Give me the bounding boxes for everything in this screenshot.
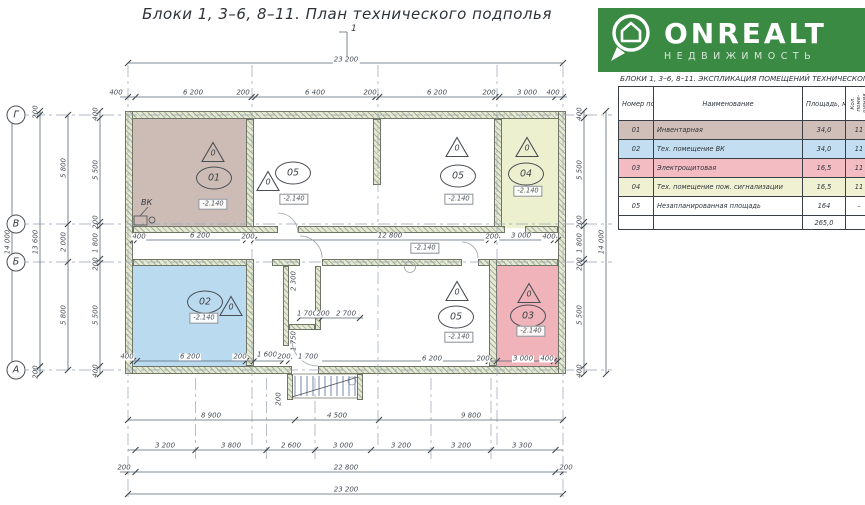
table-row: 02 Тех. помещение ВК 34,0 11: [619, 140, 865, 159]
explication-title: БЛОКИ 1, 3–6, 8–11. ЭКСПЛИКАЦИЯ ПОМЕЩЕНИ…: [620, 74, 864, 83]
dim-label: 200: [577, 215, 584, 228]
elevation-mark: -2.140: [444, 194, 473, 205]
dim-label: 1 800: [93, 233, 100, 253]
dim-label: 3 300: [511, 443, 533, 450]
dim-label: 400: [93, 364, 100, 377]
room-number-05: 05: [275, 162, 311, 185]
dim-label: 3 000: [332, 443, 354, 450]
triangle-marker: 0: [515, 137, 539, 158]
dim-label: 2 700: [335, 311, 357, 318]
triangle-marker: 0: [219, 296, 243, 317]
dim-label: 3 000: [512, 356, 534, 363]
cell-count: 11: [846, 159, 865, 178]
dim-label: 200: [362, 90, 377, 97]
dim-label: 6 200: [189, 233, 211, 240]
dim-label: 3 200: [390, 443, 412, 450]
vk-label: ВК: [141, 198, 152, 207]
triangle-marker: 0: [201, 142, 225, 163]
section-marker-label: 1: [351, 24, 357, 34]
dim-label: 6 200: [421, 356, 443, 363]
dim-label: 1 700: [297, 354, 319, 361]
table-row: 01 Инвентарная 34,0 11: [619, 121, 865, 140]
cell-name: Тех. помещение пож. сигнализации: [654, 178, 803, 197]
dim-label: 6 200: [179, 354, 201, 361]
dim-label: 400: [108, 90, 123, 97]
dim-label: 200: [558, 465, 573, 472]
table-row: 04 Тех. помещение пож. сигнализации 16,5…: [619, 178, 865, 197]
dim-label: 5 800: [61, 305, 68, 325]
dim-top-total: 23 200: [333, 57, 360, 64]
cell-count: 11: [846, 140, 865, 159]
cell-area: 164: [803, 197, 846, 216]
dim-label: 13 600: [33, 230, 40, 255]
table-header-row: Номер поме- щения Наименование Площадь, …: [619, 87, 865, 121]
room-number-03: 03: [510, 305, 546, 328]
dim-label: 5 800: [61, 158, 68, 178]
dim-label: 200: [276, 392, 283, 405]
dim-label: 2 300: [291, 271, 298, 291]
dim-label: 400: [93, 107, 100, 120]
dim-label: 2 000: [61, 232, 68, 252]
room-number-05: 05: [440, 165, 476, 188]
dim-label: 200: [33, 105, 40, 118]
dim-label: 8 900: [200, 413, 222, 420]
cell-num: 03: [619, 159, 654, 178]
dim-label: 3 000: [516, 90, 538, 97]
axis-bubble-g: Г: [7, 106, 26, 125]
cell-area: 34,0: [803, 121, 846, 140]
axis-bubble-b: Б: [7, 253, 26, 272]
cell-area: 16,5: [803, 159, 846, 178]
table-row: 05 Незапланированная площадь 164 –: [619, 197, 865, 216]
cell-num: 04: [619, 178, 654, 197]
dim-label: 200: [93, 257, 100, 270]
cell-count: 11: [846, 121, 865, 140]
explication-table: Номер поме- щения Наименование Площадь, …: [618, 86, 865, 230]
dim-label: 4 500: [326, 413, 348, 420]
dim-label: 400: [577, 107, 584, 120]
dim-label: 400: [545, 90, 560, 97]
dim-label: 400: [131, 234, 146, 241]
room-number-01: 01: [196, 167, 232, 190]
cell-count: 11: [846, 178, 865, 197]
dim-label: 5 500: [93, 160, 100, 180]
floor-plan-page: Блоки 1, 3–6, 8–11. План технического по…: [0, 0, 865, 505]
dim-label: 2 600: [280, 443, 302, 450]
dim-label: 5 500: [93, 305, 100, 325]
dim-label: 3 800: [220, 443, 242, 450]
dim-label: 400: [539, 356, 554, 363]
dim-label: 3 000: [510, 233, 532, 240]
dim-label: 3 200: [154, 443, 176, 450]
dim-label: 200: [240, 234, 255, 241]
elevation-mark: -2.140: [410, 243, 439, 254]
dim-label: 200: [93, 215, 100, 228]
dim-right-total: 14 000: [599, 230, 606, 255]
dim-label: 200: [33, 365, 40, 378]
vk-fixture: [134, 207, 155, 225]
triangle-marker: 0: [256, 171, 280, 192]
cell-count: –: [846, 197, 865, 216]
cell-name: Незапланированная площадь: [654, 197, 803, 216]
cell-num: 01: [619, 121, 654, 140]
onrealt-logo: ONREALT НЕДВИЖИМОСТЬ: [598, 8, 865, 72]
room-number-05: 05: [438, 306, 474, 329]
cell-area: 16,5: [803, 178, 846, 197]
dim-label: 400: [119, 354, 134, 361]
house-pin-icon: [606, 11, 654, 69]
cell-num: 02: [619, 140, 654, 159]
cell-num: 05: [619, 197, 654, 216]
cell-area: 34,0: [803, 140, 846, 159]
dim-bottom-total: 23 200: [333, 487, 360, 494]
dim-label: 400: [541, 234, 556, 241]
col-header-count: Кол. поме- щения: [846, 87, 865, 121]
room-number-04: 04: [508, 163, 544, 186]
cell-name: Инвентарная: [654, 121, 803, 140]
elevation-mark: -2.140: [198, 199, 227, 210]
table-total-row: 265,0: [619, 216, 865, 230]
dim-label: 200: [481, 90, 496, 97]
dim-label: 1 800: [577, 233, 584, 253]
dim-label: 9 800: [460, 413, 482, 420]
dim-label: 1 750: [291, 331, 298, 351]
triangle-marker: 0: [517, 283, 541, 304]
dim-label: 200: [484, 234, 499, 241]
room-explication: БЛОКИ 1, 3–6, 8–11. ЭКСПЛИКАЦИЯ ПОМЕЩЕНИ…: [618, 74, 864, 230]
elevation-mark: -2.140: [279, 194, 308, 205]
axis-bubble-a: А: [7, 361, 26, 380]
triangle-marker: 0: [445, 137, 469, 158]
dim-label: 200: [276, 354, 291, 361]
elevation-mark: -2.140: [516, 326, 545, 337]
logo-subtitle-text: НЕДВИЖИМОСТЬ: [664, 51, 827, 62]
dim-label: 5 500: [577, 305, 584, 325]
dim-label: 5 500: [577, 160, 584, 180]
triangle-marker: 0: [445, 281, 469, 302]
dim-label: 6 200: [426, 90, 448, 97]
page-title: Блоки 1, 3–6, 8–11. План технического по…: [142, 5, 552, 23]
dim-label: 200: [235, 90, 250, 97]
dim-label: 200: [475, 356, 490, 363]
col-header-area: Площадь, м²: [803, 87, 846, 121]
dim-label: 6 400: [304, 90, 326, 97]
table-row: 03 Электрощитовая 16,5 11: [619, 159, 865, 178]
dim-label: 200: [232, 354, 247, 361]
logo-brand-text: ONREALT: [664, 19, 827, 49]
dim-label: 200: [577, 257, 584, 270]
dim-inner-total: 22 800: [333, 465, 360, 472]
dim-label: 1 600: [256, 352, 278, 359]
dim-label: 12 800: [377, 233, 404, 240]
col-header-name: Наименование: [654, 87, 803, 121]
dim-label: 400: [577, 364, 584, 377]
room-number-02: 02: [187, 291, 223, 314]
dim-label: 6 200: [182, 90, 204, 97]
elevation-mark: -2.140: [444, 332, 473, 343]
cell-total-area: 265,0: [803, 216, 846, 230]
dim-label: 3 200: [450, 443, 472, 450]
col-header-number: Номер поме- щения: [619, 87, 654, 121]
dim-label: 200: [116, 465, 131, 472]
dim-label: 200: [315, 311, 330, 318]
cell-name: Тех. помещение ВК: [654, 140, 803, 159]
cell-name: Электрощитовая: [654, 159, 803, 178]
elevation-mark: -2.140: [513, 186, 542, 197]
elevation-mark: -2.140: [189, 313, 218, 324]
dim-left-total: 14 000: [5, 230, 12, 255]
